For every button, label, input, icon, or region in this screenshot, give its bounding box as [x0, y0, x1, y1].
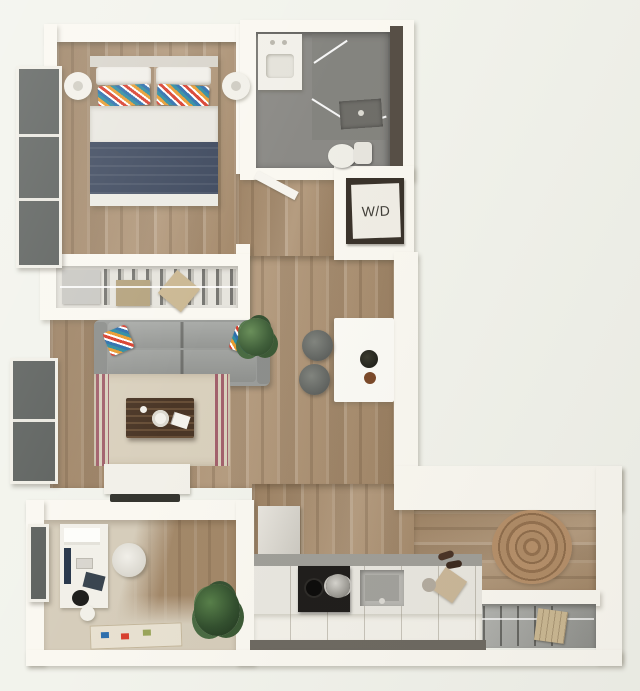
bathroom-dark-edge: [390, 26, 403, 174]
stove-pot: [326, 574, 350, 598]
coffee-table-cup: [140, 406, 147, 413]
living-room-window: [10, 358, 58, 484]
den-monstera-plant: [194, 584, 240, 636]
window-mullion: [13, 419, 55, 422]
entry-right-wall: [596, 466, 622, 662]
bed-headboard: [90, 56, 218, 67]
wardrobe-storage-box-tan: [116, 280, 150, 306]
bed-foot-fold: [90, 194, 218, 206]
nightstand-left: [64, 72, 92, 100]
living-room-plant: [238, 318, 274, 356]
kitchen-sink: [360, 570, 404, 606]
kitchen-tall-cabinet: [258, 506, 300, 558]
shower-enclosure: [312, 34, 388, 140]
nightstand-lamp: [73, 81, 83, 91]
desk-dark-object: [72, 590, 89, 606]
office-chair: [112, 543, 146, 577]
vanity-faucet: [282, 40, 287, 45]
nightstand-right: [222, 72, 250, 100]
den-side-stool: [80, 606, 95, 621]
kitchen-small-bowl: [422, 578, 436, 592]
vanity-faucet: [270, 40, 275, 45]
shower-drain: [358, 110, 364, 116]
den-rug-pattern: [143, 629, 151, 635]
vanity-sink: [266, 54, 294, 78]
window-mullion: [19, 134, 59, 137]
dining-counter: [334, 318, 394, 402]
den-rug: [90, 622, 183, 649]
floorplan-render: W/D: [0, 0, 640, 691]
kitchen-toe-shadow: [250, 640, 486, 650]
den-top-wall: [26, 500, 250, 520]
den-rug-pattern: [121, 633, 129, 639]
bedroom-top-wall: [45, 24, 245, 42]
coffee-table: [126, 398, 194, 438]
tv: [110, 494, 180, 502]
bed-accent-pillow-left: [97, 84, 150, 108]
stove-burner: [304, 578, 324, 598]
toilet-tank: [354, 142, 372, 164]
desk-keyboard: [76, 558, 93, 569]
living-right-wall: [394, 252, 418, 474]
nightstand-lamp: [231, 81, 241, 91]
kitchen-cabinet-front: [254, 614, 482, 640]
desk-papers: [64, 528, 100, 542]
bed: [90, 56, 218, 206]
stove: [298, 566, 350, 612]
tv-console: [104, 464, 190, 494]
shower-glass-edge: [313, 40, 347, 64]
bed-duvet: [90, 106, 218, 142]
den-window: [28, 524, 49, 602]
rug-stripe-band-right: [215, 374, 228, 466]
desk: [60, 524, 108, 608]
sink-faucet: [379, 598, 385, 604]
entry-top-wall: [394, 466, 622, 510]
entry-round-rug: [492, 510, 572, 584]
bed-pillow-white-left: [96, 67, 151, 85]
coffee-table-book: [170, 412, 190, 430]
toilet-bowl: [328, 144, 356, 168]
rug-stripe-band-left: [96, 374, 109, 466]
wd-closet-door: W/D: [351, 183, 401, 239]
wardrobe-hanging-rod: [60, 286, 238, 288]
coffee-table-plate: [152, 410, 169, 427]
den-rug-pattern: [101, 632, 109, 638]
desk-monitor: [64, 548, 71, 584]
wd-label: W/D: [361, 203, 390, 220]
bed-pillow-white-right: [156, 67, 211, 85]
entry-closet-box: [534, 608, 568, 644]
bedroom-window: [16, 66, 62, 268]
dining-counter-plant-bowl: [360, 350, 378, 368]
bed-accent-pillow-right: [156, 84, 209, 108]
dining-counter-bowl: [364, 372, 376, 384]
desk-laptop: [82, 572, 105, 591]
bottom-outer-wall: [26, 650, 622, 666]
window-mullion: [19, 198, 59, 201]
bed-navy-blanket: [90, 142, 218, 194]
bathroom-vanity: [258, 34, 302, 90]
dining-stool-top: [302, 330, 333, 361]
dining-stool-bottom: [299, 364, 330, 395]
